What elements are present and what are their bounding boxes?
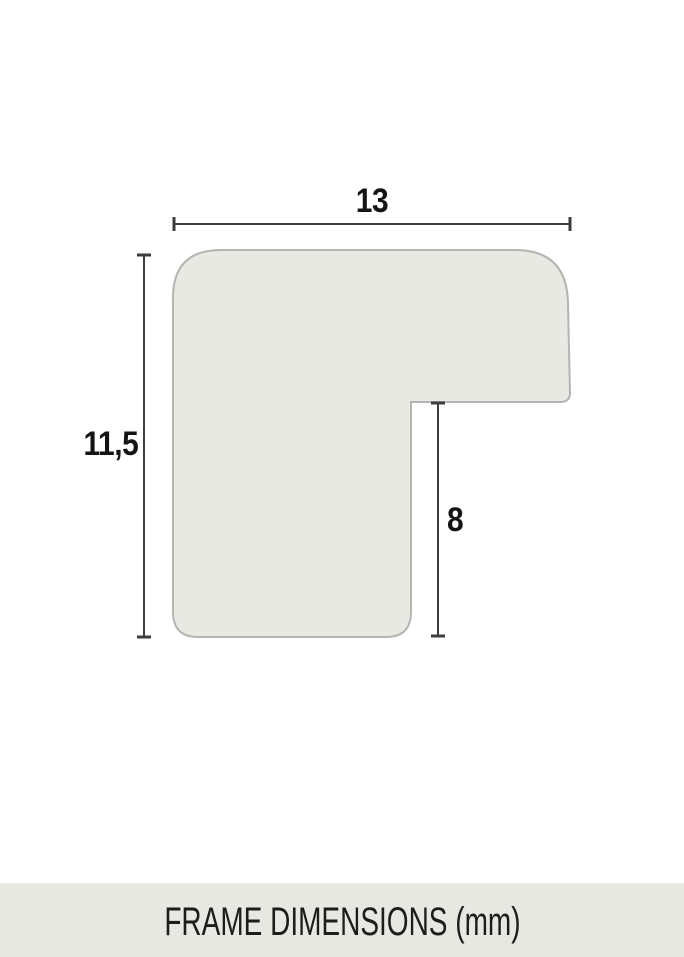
rabbet-dimension-line bbox=[431, 403, 445, 636]
frame-profile-shape bbox=[173, 250, 570, 637]
height-dimension-label: 11,5 bbox=[83, 427, 138, 461]
height-dimension-line bbox=[137, 255, 151, 637]
width-dimension-label: 13 bbox=[356, 184, 388, 218]
footer-title: FRAME DIMENSIONS (mm) bbox=[164, 896, 520, 945]
frame-profile-diagram: 13 11,5 8 bbox=[0, 0, 684, 883]
frame-dimensions-page: 13 11,5 8 FRAME DIMENSIONS (mm) bbox=[0, 0, 684, 957]
footer-bar: FRAME DIMENSIONS (mm) bbox=[0, 883, 684, 957]
rabbet-dimension-label: 8 bbox=[447, 503, 463, 537]
